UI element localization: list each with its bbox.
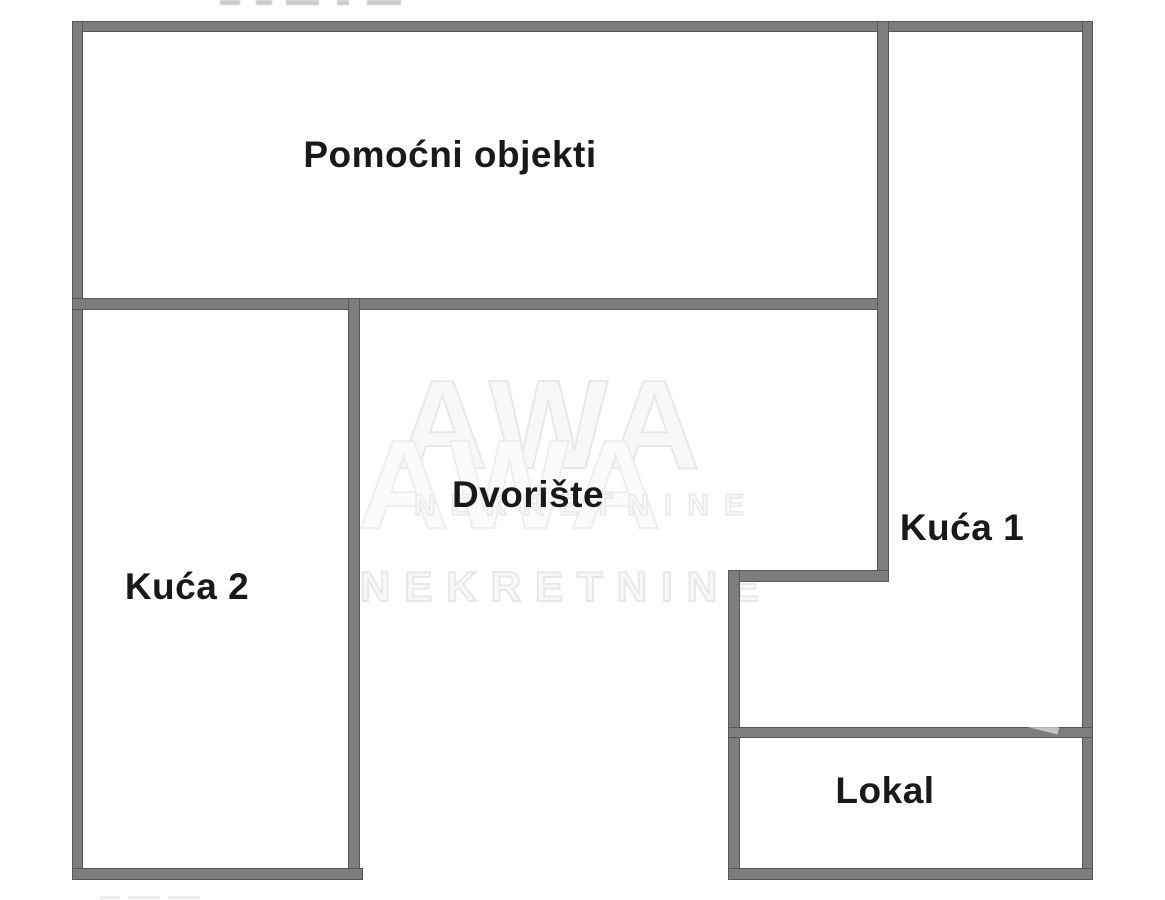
wall-bottom-under-kuca2 <box>72 868 363 880</box>
cropped-text-artifact <box>256 0 272 5</box>
wall-bottom-under-lokal <box>728 868 1093 880</box>
watermark-nekretnine-text: NEKRETNINE <box>360 563 773 611</box>
cropped-text-artifact <box>220 0 240 5</box>
wall-lokal-kuca1-left-lower <box>728 570 740 880</box>
wall-kuca1-left-upper <box>877 21 889 582</box>
room-label-lokal: Lokal <box>835 770 934 812</box>
room-label-pomocni-objekti: Pomoćni objekti <box>303 134 596 176</box>
wall-kuca1-step <box>728 570 889 582</box>
floor-plan: AWA AWA NEKRETNINE NEKRETNINE Pomoćni ob… <box>0 0 1165 900</box>
cropped-text-artifact <box>337 0 349 5</box>
cropped-text-artifact <box>286 0 319 5</box>
room-label-kuca-2: Kuća 2 <box>125 566 249 608</box>
cropped-text-artifact <box>128 896 160 899</box>
wall-outer-right <box>1082 21 1093 880</box>
cropped-text-artifact <box>367 0 401 5</box>
wall-kuca2-dvoriste-divider <box>348 298 360 880</box>
wall-pomocni-objekti-bottom <box>72 298 889 310</box>
cropped-text-artifact <box>100 896 120 899</box>
room-label-dvoriste: Dvorište <box>452 474 604 516</box>
cropped-text-artifact <box>168 896 200 899</box>
room-label-kuca-1: Kuća 1 <box>900 507 1024 549</box>
wall-outer-top <box>72 21 1093 32</box>
wall-outer-left <box>72 21 83 880</box>
